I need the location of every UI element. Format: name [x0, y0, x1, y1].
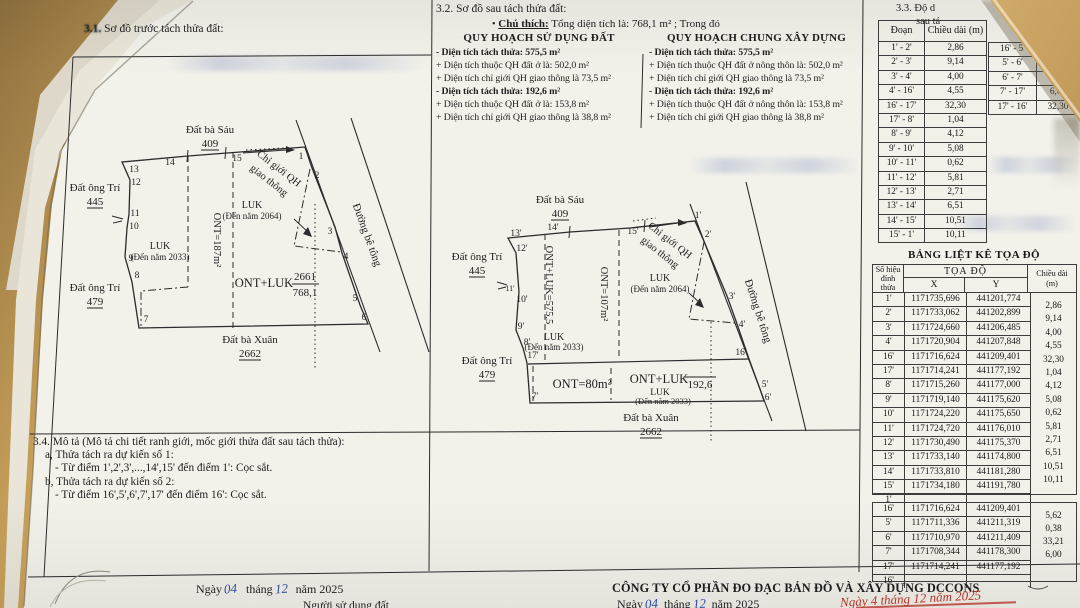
coordinate-table-title: BẢNG LIỆT KÊ TỌA ĐỘ	[870, 249, 1078, 261]
svg-text:4: 4	[344, 252, 349, 262]
table-row: 8' - 9'4,12	[879, 128, 986, 142]
length-value: 4,55	[1031, 341, 1076, 352]
svg-text:1: 1	[299, 152, 304, 162]
zone-area-label: ONT=107m²	[598, 267, 609, 322]
parcel-number: 479	[87, 296, 104, 308]
svg-text:2': 2'	[705, 230, 712, 240]
table-row: 17'1171714,241441177,192	[873, 561, 1031, 575]
road-label: Đường bê tông	[742, 278, 774, 345]
construction-plan-column: QUY HOẠCH CHUNG XÂY DỰNG - Diện tích tác…	[642, 32, 864, 124]
svg-text:2: 2	[315, 171, 320, 181]
svg-text:12: 12	[131, 178, 141, 188]
table-row: 17'1171714,241441177,192	[873, 365, 1031, 379]
arrow-head	[678, 219, 687, 226]
zone-area-label: ONT+LUK	[630, 372, 688, 386]
edge-length-table-1: Đoạn Chiều dài (m) 1' - 2'2,862' - 3'9,1…	[878, 20, 987, 243]
photographed-survey-document: Đất bà Sáu 409 Đất ông Trí 445 Đất ông T…	[0, 0, 1080, 608]
description-item-a: a, Thửa tách ra dự kiến số 1:	[45, 449, 345, 462]
table-row: 2' - 3'9,14	[879, 56, 986, 70]
description-item-a1: - Từ điểm 1',2',3',...,14',15' đến điểm …	[55, 462, 345, 475]
svg-text:13: 13	[129, 165, 139, 175]
handwritten-day: 04	[223, 581, 237, 598]
length-value: 0,62	[1031, 408, 1076, 419]
length-value: 4,00	[1031, 328, 1076, 339]
table-row: 10' - 11'0,62	[879, 157, 986, 171]
zone-area-value: 192,6	[688, 379, 713, 391]
svg-text:13': 13'	[510, 229, 522, 239]
table-row: 17' - 8'1,04	[879, 114, 986, 128]
length-value: 10,51	[1031, 462, 1076, 473]
length-value: 2,86	[1031, 301, 1076, 312]
svg-text:16': 16'	[735, 348, 747, 358]
length-value: 5,62	[1031, 511, 1076, 522]
svg-text:12': 12'	[516, 244, 528, 254]
zone-label-luk: LUK	[150, 241, 171, 252]
description-item-b1: - Từ điểm 16',5',6',7',17' đến điểm 16':…	[55, 489, 345, 502]
parcel-number: 409	[552, 208, 569, 220]
table-row: 12' - 13'2,71	[879, 186, 986, 200]
length-value: 6,00	[1031, 550, 1076, 561]
handwritten-month: 12	[692, 596, 706, 608]
svg-text:8: 8	[135, 271, 140, 281]
svg-text:9: 9	[129, 254, 134, 264]
date-line-right: Ngày04tháng12năm 2025	[617, 596, 759, 608]
table-row: 3'1171724,660441206,485	[873, 322, 1031, 336]
svg-text:1': 1'	[695, 211, 702, 221]
land-use-plan-column: QUY HOẠCH SỬ DỤNG ĐẤT - Diện tích tách t…	[436, 32, 642, 124]
column-title: QUY HOẠCH SỬ DỤNG ĐẤT	[436, 32, 642, 45]
land-user-signature-label: Người sử dụng đất	[303, 600, 389, 608]
svg-text:7': 7'	[532, 392, 539, 402]
svg-text:17': 17'	[527, 351, 539, 361]
neighbor-label: Đất ông Trí	[70, 182, 121, 194]
zone-area-label: ONT+LUK=575,5	[543, 246, 554, 325]
table-row: 16' - 17'32,30	[879, 100, 986, 114]
table-row: 15' - 1'10,11	[879, 229, 986, 242]
svg-text:8': 8'	[524, 338, 531, 348]
length-value: 32,30	[1031, 355, 1076, 366]
svg-text:15': 15'	[627, 227, 639, 237]
length-value: 5,81	[1031, 422, 1076, 433]
svg-text:5: 5	[353, 294, 358, 304]
table-row: 13' - 14'6,51	[879, 200, 986, 214]
section-3-1-title: 3.1. Sơ đồ trước tách thửa đất:	[84, 23, 224, 35]
length-value: 4,12	[1031, 381, 1076, 392]
section-3-2-title: 3.2. Sơ đồ sau tách thửa đất:	[436, 3, 864, 15]
table-row: 14' - 15'10,51	[879, 215, 986, 229]
table-row: 1'1171735,696441201,774	[873, 293, 1031, 307]
svg-text:11': 11'	[505, 284, 515, 293]
table-row: 4'1171720,904441207,848	[873, 336, 1031, 350]
arrow-head	[286, 146, 295, 153]
map-after-subdivision: Đất bà Sáu 409 Đất ông Trí 445 Đất ông T…	[452, 182, 806, 441]
parcel-number: 409	[202, 138, 219, 150]
column-header-length: Chiều dài (m)	[925, 21, 986, 41]
length-value: 33,21	[1031, 537, 1076, 548]
zone-label-luk: LUK	[650, 273, 671, 284]
parcel-number: 479	[479, 369, 496, 381]
section-3-4-description: 3.4. Mô tả (Mô tả chi tiết ranh giới, mố…	[33, 436, 345, 502]
svg-text:6: 6	[362, 313, 367, 323]
column-header-segment: Đoạn	[879, 21, 925, 41]
table-row: 9'1171719,140441175,620	[873, 394, 1031, 408]
svg-text:5': 5'	[762, 380, 769, 390]
neighbor-label: Đất bà Sáu	[536, 194, 585, 206]
length-value: 1,04	[1031, 368, 1076, 379]
table-row: 15'1171734,180441191,780	[873, 480, 1031, 494]
table-row: 11'1171724,720441176,010	[873, 423, 1031, 437]
parcel-number: 2662	[640, 426, 662, 438]
table-row: 3' - 4'4,00	[879, 71, 986, 85]
svg-text:7: 7	[144, 315, 149, 325]
zone-label-luk-year: (Đến năm 2033)	[635, 396, 691, 406]
neighbor-label: Đất ông Trí	[462, 355, 513, 367]
svg-text:6': 6'	[765, 393, 772, 403]
table-row: 6'1171710,970441211,409	[873, 532, 1031, 546]
bullet-icon: •	[492, 19, 496, 30]
parcel-number: 445	[87, 196, 104, 208]
neighbor-label: Đất ông Trí	[452, 251, 503, 263]
coordinate-table-header: Số hiệuđỉnh thửa TỌA ĐỘ X Y Chiều dài(m)	[873, 265, 1076, 293]
svg-text:14': 14'	[547, 223, 559, 233]
coordinate-table-2: 16'1171716,624441209,4015'1171711,336441…	[872, 502, 1077, 582]
table-row: 2'1171733,062441202,899	[873, 307, 1031, 321]
length-value: 0,38	[1031, 524, 1076, 535]
coordinate-table: Số hiệuđỉnh thửa TỌA ĐỘ X Y Chiều dài(m)…	[872, 264, 1077, 495]
fraction-denominator: 768,1	[293, 287, 318, 299]
table-row: 11' - 12'5,81	[879, 172, 986, 186]
table-row: 10'1171724,220441175,650	[873, 408, 1031, 422]
parcel-number: 2662	[239, 348, 261, 360]
paper-curl-line	[50, 580, 106, 607]
table-row: 13'1171733,140441174,800	[873, 451, 1031, 465]
svg-text:4': 4'	[739, 320, 746, 330]
table-row: 14'1171733,810441181,280	[873, 466, 1031, 480]
length-value: 10,11	[1031, 475, 1076, 486]
zone-label-luk-year: (Đến năm 2064)	[223, 211, 282, 221]
table-row: 8'1171715,260441177,000	[873, 379, 1031, 393]
table-row: 5'1171711,336441211,319	[873, 517, 1031, 531]
length-value: 6,51	[1031, 448, 1076, 459]
svg-text:9': 9'	[518, 322, 525, 332]
zone-label-luk: LUK	[242, 200, 263, 211]
table-row: 16'1171716,624441209,401	[873, 503, 1031, 517]
svg-text:3': 3'	[729, 292, 736, 302]
table-row: 7'1171708,344441178,300	[873, 546, 1031, 560]
parcel-number: 445	[469, 265, 486, 277]
fraction-numerator: 2661	[294, 271, 316, 283]
length-column: 2,869,144,004,5532,301,044,125,080,625,8…	[1031, 293, 1076, 494]
paper-edge-shadow	[24, 1, 193, 606]
table-row: 4' - 16'4,55	[879, 85, 986, 99]
vertex-labels: 1314 151 23 45 67 89 1011 12	[129, 152, 367, 325]
length-value: 5,08	[1031, 395, 1076, 406]
description-title: 3.4. Mô tả (Mô tả chi tiết ranh giới, mố…	[33, 436, 345, 449]
date-line-left: Ngày04tháng12năm 2025	[196, 581, 343, 597]
road-label: Đường bê tông	[350, 202, 384, 269]
legend-total-area: Tổng diện tích là: 768,1 m² ; Trong đó	[551, 18, 720, 30]
zone-area-label: ONT=80m²	[553, 377, 612, 391]
svg-text:10: 10	[129, 222, 139, 232]
svg-text:3: 3	[328, 227, 333, 237]
svg-text:15: 15	[232, 154, 242, 164]
brace-mark	[1028, 586, 1048, 589]
description-item-b: b, Thửa tách ra dự kiến số 2:	[45, 476, 345, 489]
map-before-subdivision: Đất bà Sáu 409 Đất ông Trí 445 Đất ông T…	[70, 118, 429, 369]
neighbor-label: Đất ông Trí	[70, 282, 121, 294]
legend-total-line: • Chú thích: Tổng diện tích là: 768,1 m²…	[492, 18, 864, 30]
svg-text:10': 10'	[516, 295, 528, 305]
zone-area-label: ONT=187m²	[211, 213, 222, 268]
table-header: Đoạn Chiều dài (m)	[879, 21, 986, 42]
neighbor-label: Đất bà Xuân	[623, 412, 679, 424]
handwritten-day: 04	[644, 596, 658, 608]
zone-area-label: ONT+LUK	[235, 276, 293, 290]
zone-label-luk-year: (Đến năm 2033)	[131, 252, 190, 262]
length-column: 5,620,3833,216,00	[1031, 503, 1076, 581]
zone-label-luk-year: (Đến năm 2064)	[631, 284, 690, 294]
length-value: 9,14	[1031, 314, 1076, 325]
svg-text:14: 14	[165, 158, 175, 168]
table-row: 12'1171730,490441175,370	[873, 437, 1031, 451]
legend-label: Chú thích:	[498, 18, 548, 30]
column-title: QUY HOẠCH CHUNG XÂY DỰNG	[649, 32, 864, 45]
section-3-2-block: 3.2. Sơ đồ sau tách thửa đất: • Chú thíc…	[436, 3, 864, 124]
handwritten-month: 12	[274, 581, 288, 598]
svg-text:11: 11	[130, 209, 139, 219]
table-row: 1' - 2'2,86	[879, 42, 986, 56]
neighbor-label: Đất bà Xuân	[222, 334, 278, 346]
table-row: 16'1171716,624441209,401	[873, 351, 1031, 365]
neighbor-label: Đất bà Sáu	[186, 124, 235, 136]
length-value: 2,71	[1031, 435, 1076, 446]
table-row: 9' - 10'5,08	[879, 143, 986, 157]
